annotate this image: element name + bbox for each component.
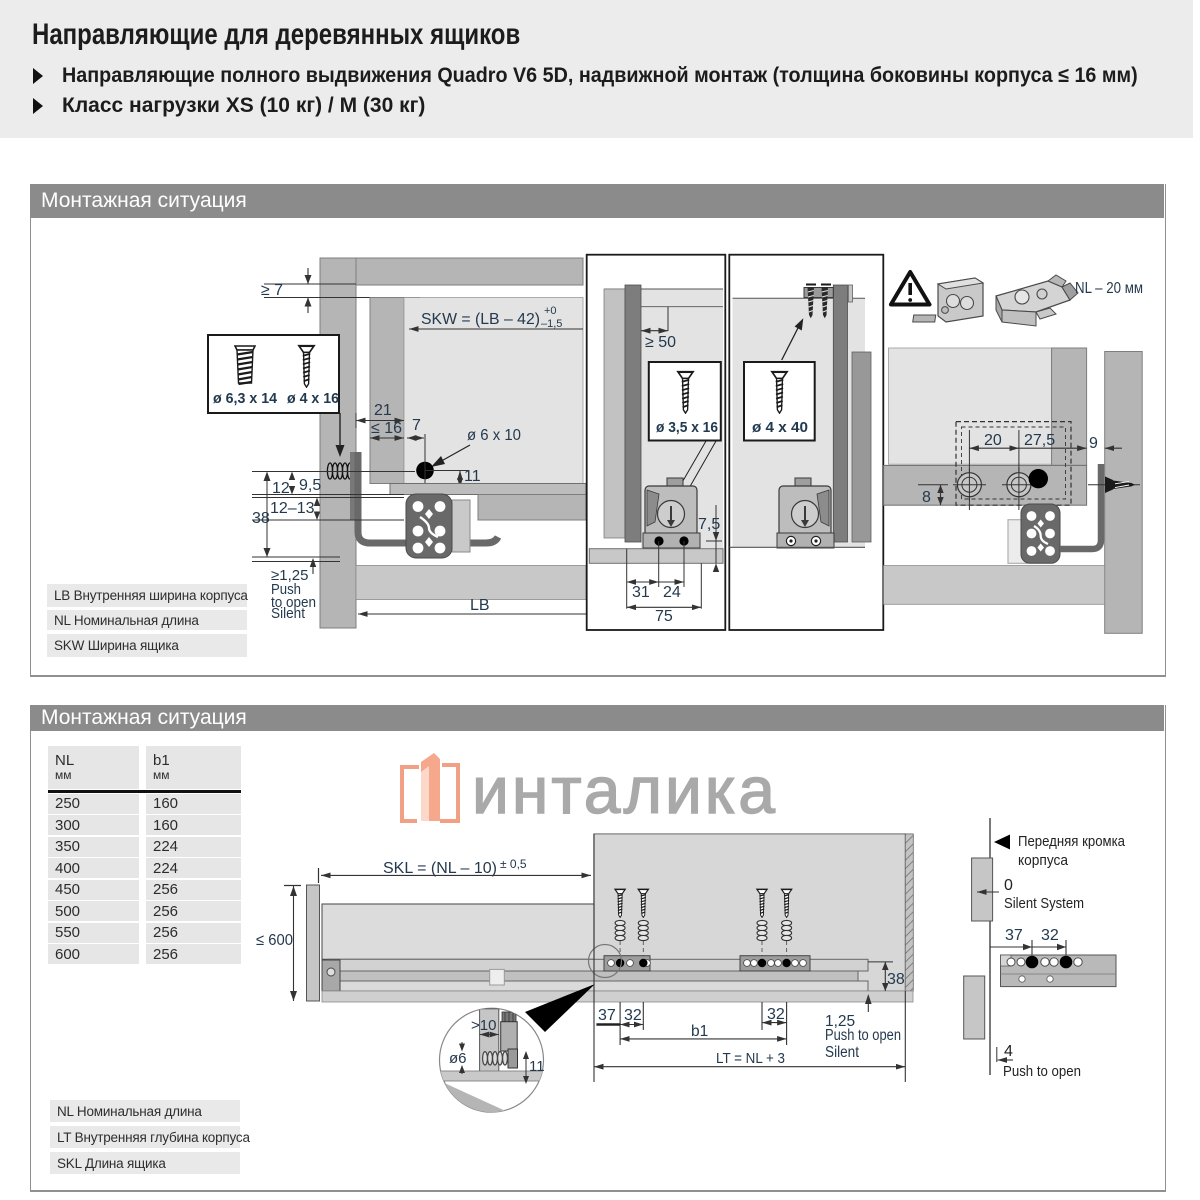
svg-text:38: 38 [887, 971, 905, 988]
svg-text:7: 7 [412, 417, 421, 434]
svg-text:ø6: ø6 [449, 1050, 467, 1067]
svg-text:≥ 50: ≥ 50 [645, 334, 676, 351]
svg-text:ø 4 x 16: ø 4 x 16 [287, 390, 339, 407]
svg-text:корпуса: корпуса [1018, 852, 1069, 869]
svg-text:LB: LB [470, 597, 490, 614]
svg-text:37: 37 [1005, 927, 1023, 944]
svg-text:7,5: 7,5 [698, 516, 720, 533]
svg-text:0: 0 [1004, 877, 1013, 894]
svg-text:37: 37 [598, 1007, 616, 1024]
svg-text:–1,5: –1,5 [541, 318, 562, 330]
svg-text:27,5: 27,5 [1024, 432, 1055, 449]
svg-text:LT = NL + 3: LT = NL + 3 [716, 1050, 785, 1067]
svg-text:SKL = (NL – 10): SKL = (NL – 10) [383, 860, 497, 877]
svg-text:4: 4 [1004, 1043, 1013, 1060]
svg-text:31: 31 [632, 584, 650, 601]
svg-text:ø 3,5 x 16: ø 3,5 x 16 [656, 419, 718, 436]
svg-text:≤ 600: ≤ 600 [256, 932, 293, 949]
svg-text:ø 4 x 40: ø 4 x 40 [752, 419, 808, 436]
svg-text:75: 75 [655, 608, 673, 625]
svg-text:12–13: 12–13 [270, 500, 315, 517]
svg-text:8: 8 [922, 489, 931, 506]
svg-text:≤ 16: ≤ 16 [371, 420, 402, 437]
svg-text:21: 21 [374, 402, 392, 419]
svg-text:32: 32 [1041, 927, 1059, 944]
svg-text:11: 11 [464, 468, 481, 485]
svg-text:Silent System: Silent System [1004, 895, 1084, 912]
svg-text:NL – 20 мм: NL – 20 мм [1075, 280, 1143, 297]
svg-text:20: 20 [984, 432, 1002, 449]
svg-text:11: 11 [529, 1058, 545, 1075]
svg-text:>10: >10 [471, 1017, 496, 1034]
svg-text:9: 9 [1089, 435, 1098, 452]
svg-text:32: 32 [767, 1006, 785, 1023]
svg-text:38: 38 [252, 510, 270, 527]
svg-text:≥ 7: ≥ 7 [261, 282, 283, 299]
svg-text:9,5: 9,5 [299, 477, 321, 494]
svg-text:SKW = (LB – 42): SKW = (LB – 42) [421, 311, 540, 328]
svg-text:Передняя кромка: Передняя кромка [1018, 833, 1126, 850]
svg-text:24: 24 [663, 584, 681, 601]
svg-text:12: 12 [272, 480, 290, 497]
svg-text:+0: +0 [544, 305, 557, 317]
svg-text:ø 6 x 10: ø 6 x 10 [467, 427, 521, 444]
svg-text:b1: b1 [691, 1023, 708, 1040]
svg-text:Silent: Silent [825, 1044, 860, 1061]
svg-text:32: 32 [624, 1007, 642, 1024]
svg-text:Push to open: Push to open [1003, 1063, 1081, 1080]
svg-text:Push to open: Push to open [825, 1027, 901, 1044]
svg-text:Silent: Silent [271, 605, 306, 622]
svg-text:± 0,5: ± 0,5 [500, 857, 527, 871]
svg-text:ø 6,3 x 14: ø 6,3 x 14 [213, 390, 278, 407]
